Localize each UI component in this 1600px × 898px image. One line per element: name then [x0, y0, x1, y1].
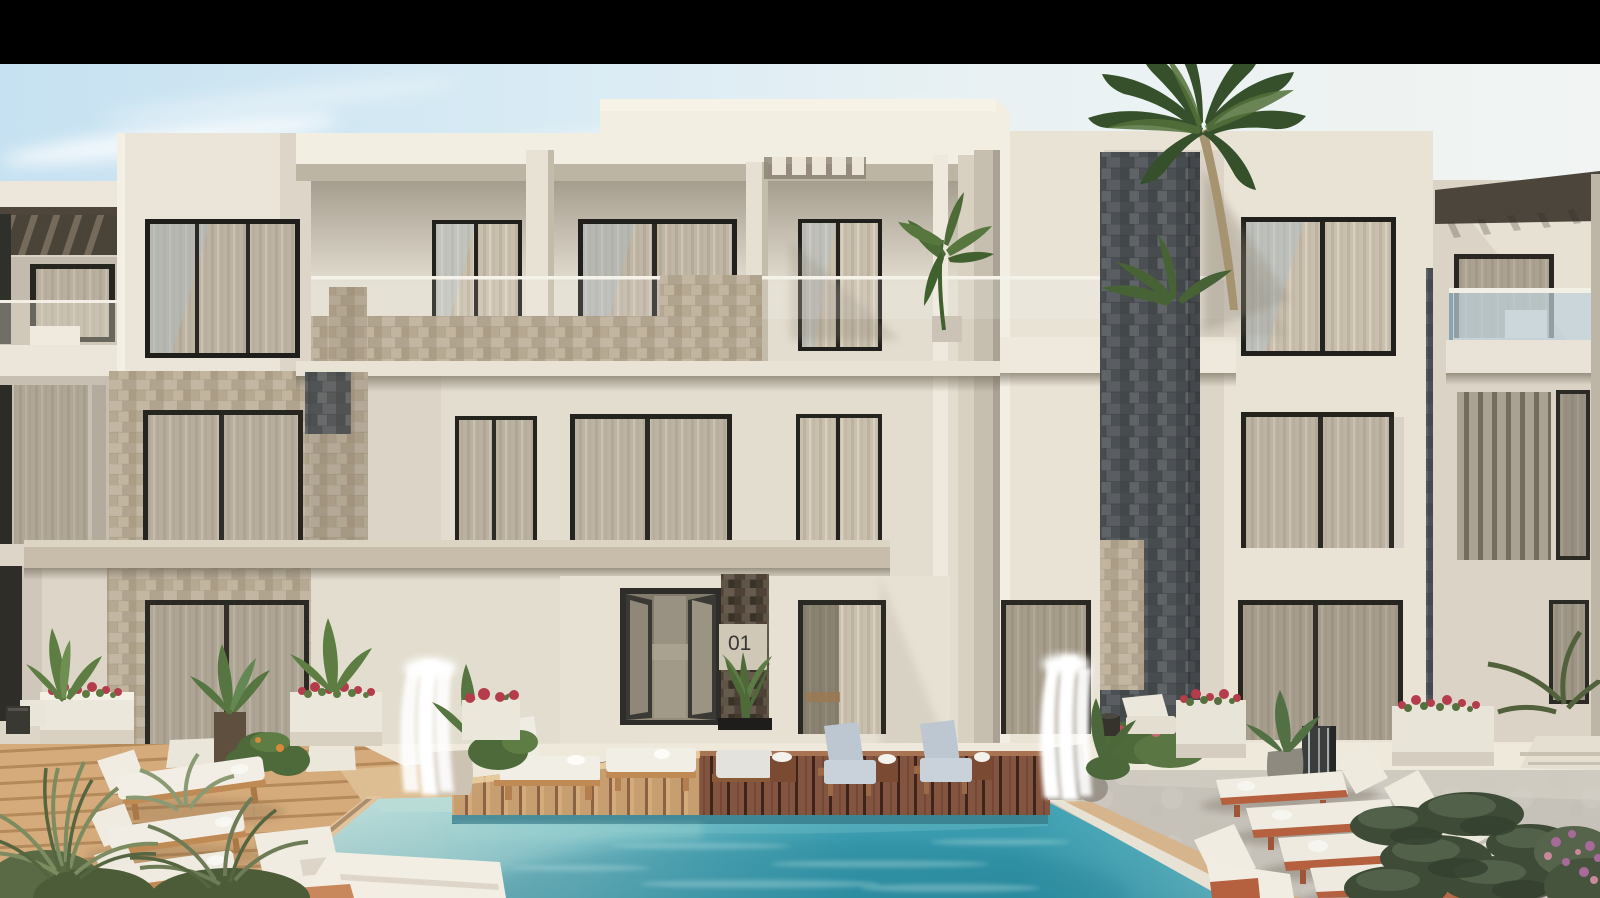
- svg-text:01: 01: [728, 632, 751, 655]
